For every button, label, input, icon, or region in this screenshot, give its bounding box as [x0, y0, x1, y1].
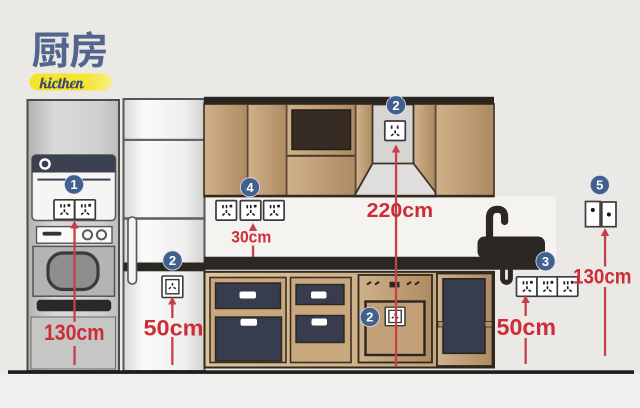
- svg-text:220cm: 220cm: [367, 199, 434, 222]
- svg-text:1: 1: [70, 177, 77, 192]
- svg-text:50cm: 50cm: [144, 316, 204, 341]
- svg-text:5: 5: [596, 178, 603, 193]
- svg-text:4: 4: [246, 180, 254, 195]
- svg-text:3: 3: [542, 254, 549, 269]
- svg-text:30cm: 30cm: [231, 229, 271, 247]
- svg-text:50cm: 50cm: [497, 314, 557, 340]
- svg-text:130cm: 130cm: [44, 320, 105, 345]
- svg-text:2: 2: [392, 98, 399, 113]
- svg-text:2: 2: [366, 310, 373, 325]
- svg-text:130cm: 130cm: [573, 266, 632, 289]
- svg-text:2: 2: [169, 253, 176, 268]
